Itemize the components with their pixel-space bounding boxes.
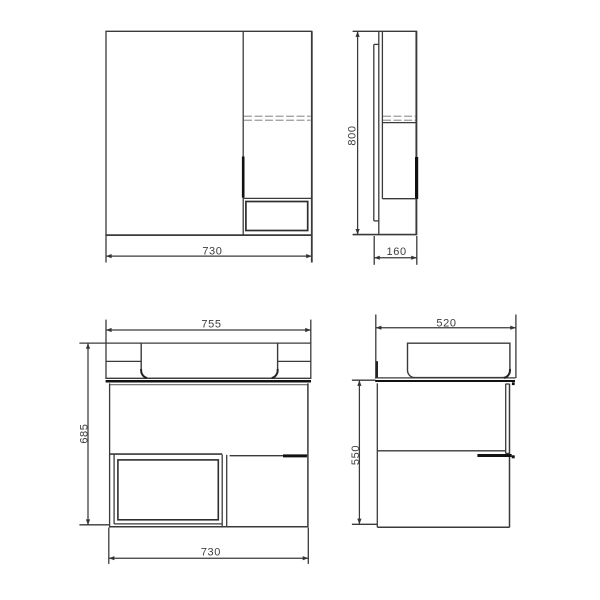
svg-text:160: 160 [387, 246, 407, 258]
svg-text:730: 730 [202, 245, 222, 257]
svg-text:520: 520 [436, 317, 456, 329]
svg-text:550: 550 [350, 445, 362, 465]
svg-text:685: 685 [78, 424, 90, 444]
svg-text:755: 755 [201, 318, 221, 330]
svg-text:730: 730 [201, 547, 221, 559]
svg-text:800: 800 [346, 125, 358, 145]
